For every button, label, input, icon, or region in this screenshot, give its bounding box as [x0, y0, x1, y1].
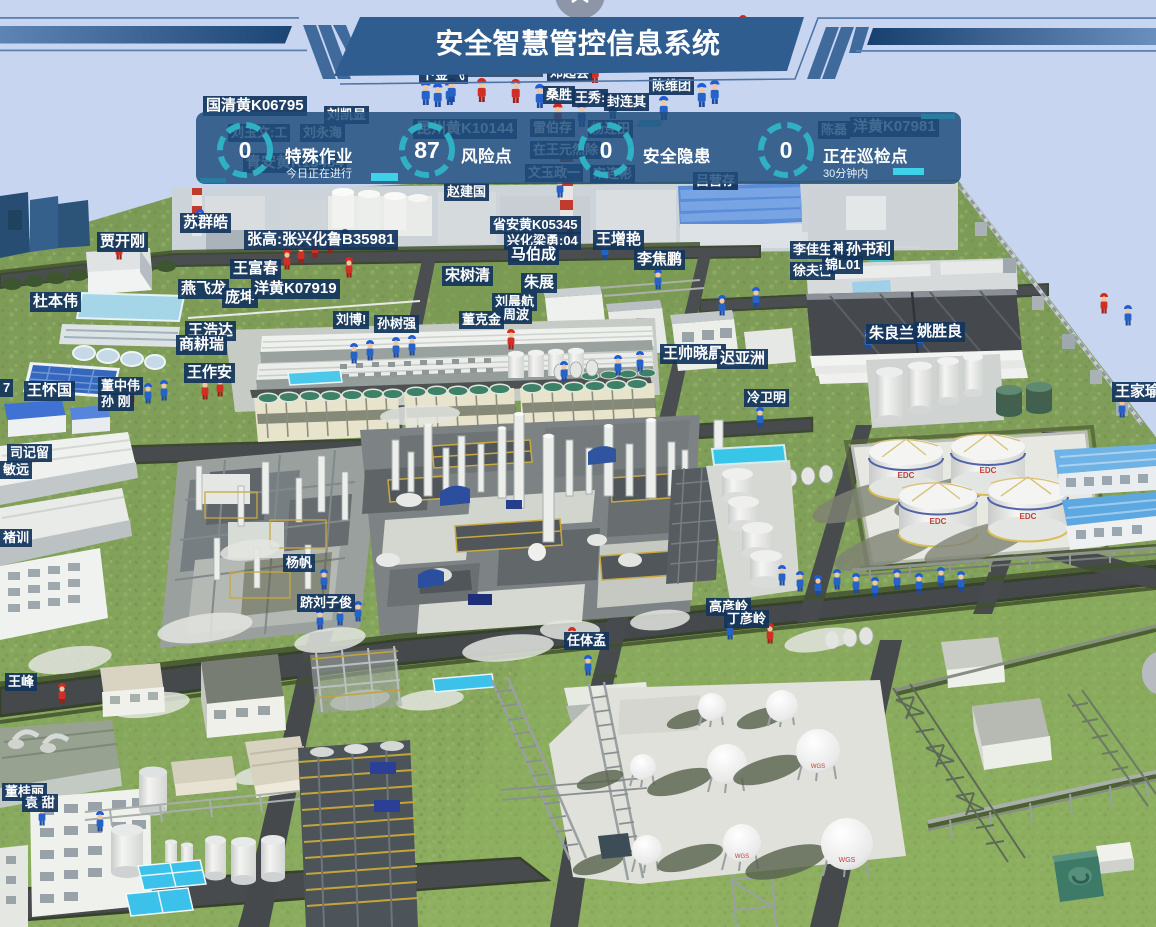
- svg-text:EDC: EDC: [898, 471, 915, 480]
- svg-text:WGS: WGS: [811, 764, 825, 770]
- svg-text:EDC: EDC: [1020, 512, 1037, 521]
- svg-text:WGS: WGS: [735, 854, 749, 860]
- svg-text:安全智慧管控信息系统: 安全智慧管控信息系统: [435, 27, 720, 59]
- svg-text:EDC: EDC: [930, 517, 947, 526]
- svg-text:WGS: WGS: [839, 857, 856, 864]
- svg-text:EDC: EDC: [980, 466, 997, 475]
